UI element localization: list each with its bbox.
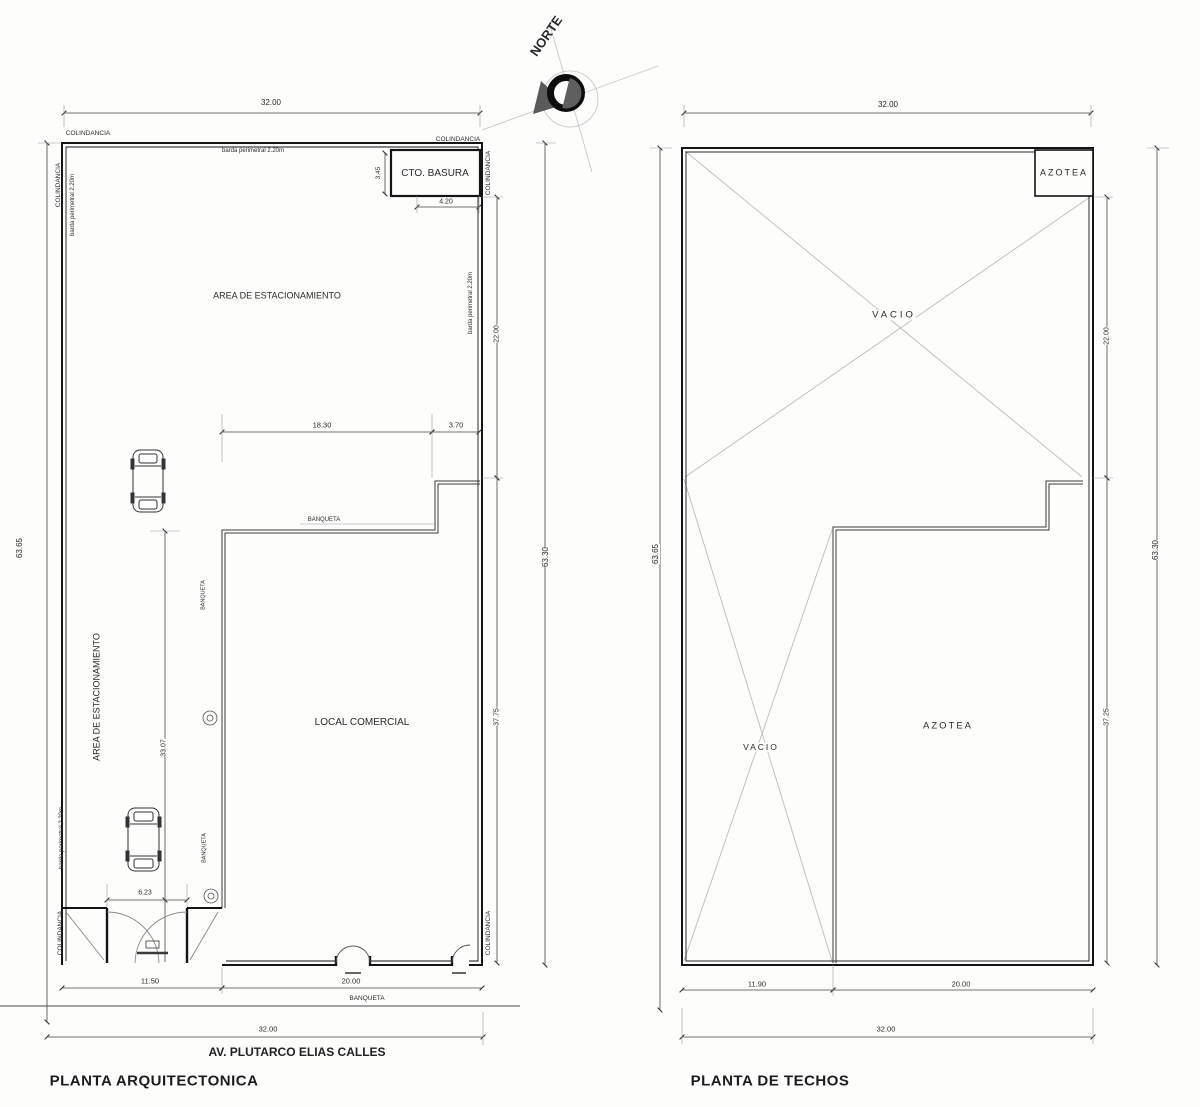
roof-dim-lower-right: 37.25 (1104, 708, 1111, 726)
roof-dim-bottom-right: 20.00 (952, 980, 971, 988)
vacio-upper-label: VACIO (872, 310, 916, 320)
roof-dim-width-bottom: 32.00 (877, 1025, 896, 1033)
dim-width-top: 32.00 (261, 99, 281, 107)
drawing-layer (0, 0, 1200, 1107)
car-icon (126, 808, 161, 871)
roof-dim-width-top: 32.00 (878, 101, 898, 109)
plan-right-title: PLANTA DE TECHOS (691, 1074, 850, 1089)
area-estacionamiento-vertical: AREA DE ESTACIONAMIENTO (93, 633, 102, 761)
dim-upper-right: 22.00 (494, 325, 501, 343)
azotea-main-label: AZOTEA (923, 721, 973, 731)
plan-right-linework (650, 105, 1169, 1044)
colindancia-top-left: COLINDANCIA (66, 131, 110, 138)
local-comercial-label: LOCAL COMERCIAL (315, 718, 410, 728)
colindancia-right-bottom: COLINDANCIA (486, 911, 493, 955)
dim-height-left: 63.65 (16, 538, 24, 558)
dim-lower-right: 37.75 (494, 708, 501, 726)
colindancia-left-bottom: COLINDANCIA (58, 911, 65, 955)
car-icon (131, 450, 165, 512)
dim-width-bottom: 32.00 (259, 1025, 278, 1033)
dim-basura-width: 4.20 (439, 199, 453, 206)
north-compass-icon (482, 22, 658, 172)
barda-left-bottom-label: barda perimetral 2.20m (59, 807, 65, 869)
barda-left-label: barda perimetral 2.20m (70, 174, 76, 236)
azotea-small-label: AZOTEA (1040, 169, 1088, 178)
dim-bottom-right: 20.00 (342, 977, 361, 985)
banqueta-storefront-label: BANQUETA (308, 517, 341, 523)
dim-height-right: 63.30 (542, 547, 550, 567)
banqueta-street-label: BANQUETA (349, 996, 384, 1003)
banqueta-upper-label: BANQUETA (201, 580, 207, 610)
access-pictogram (137, 941, 168, 953)
area-estacionamiento-label: AREA DE ESTACIONAMIENTO (213, 292, 341, 301)
roof-dim-bottom-left: 11.90 (748, 980, 766, 988)
barda-right-label: barda perimetral 2.20m (468, 272, 474, 334)
plan-left-title: PLANTA ARQUITECTONICA (50, 1074, 259, 1089)
door-swing-icon (336, 945, 470, 973)
banqueta-lower-label: BANQUETA (202, 833, 208, 863)
roof-dim-upper-right: 22.00 (1104, 327, 1111, 345)
plan-left-linework (0, 105, 556, 1045)
roof-dim-height-left: 63.65 (652, 544, 660, 564)
roof-dim-height-right: 63.30 (1152, 540, 1160, 560)
colindancia-top-right: COLINDANCIA (436, 137, 480, 144)
dim-drive-depth: 33.07 (161, 739, 168, 757)
colindancia-left-top: COLINDANCIA (56, 163, 63, 207)
dim-front-right: 3.70 (449, 421, 464, 429)
dim-bottom-left: 11.50 (141, 977, 159, 985)
colindancia-right-top: COLINDANCIA (486, 151, 493, 195)
dim-basura-height: 3.45 (376, 167, 383, 180)
dim-front-left: 18.30 (313, 421, 332, 429)
dim-gate-width: 6.23 (138, 890, 152, 897)
blueprint-sheet: NORTE 32.00 COLINDANCIA COLINDANCIA bard… (0, 0, 1200, 1107)
cto-basura-label: CTO. BASURA (401, 169, 469, 179)
vacio-lower-label: VACIO (743, 743, 779, 752)
barda-top-label: barda perimetral 2.20m (222, 148, 284, 154)
tree-icon (203, 711, 218, 903)
street-name: AV. PLUTARCO ELIAS CALLES (208, 1046, 385, 1058)
